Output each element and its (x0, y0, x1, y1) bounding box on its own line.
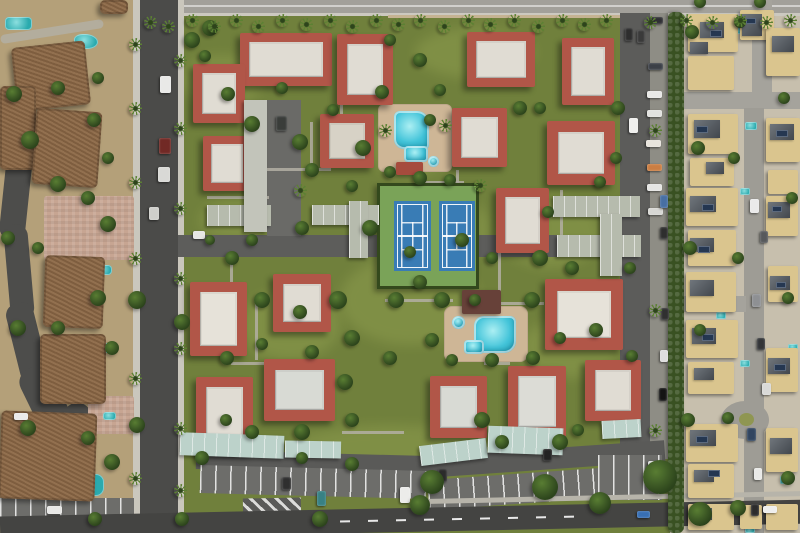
car (763, 506, 777, 513)
tree (184, 32, 200, 48)
right-house-roof (688, 56, 734, 90)
neighborhood-pool (740, 188, 750, 195)
palm-tree (578, 18, 591, 31)
tree (102, 152, 114, 164)
right-house-roof (768, 170, 798, 194)
right-house-gray-section (690, 280, 714, 296)
tree (565, 261, 579, 275)
tree (469, 294, 481, 306)
tree (254, 292, 270, 308)
car (317, 491, 326, 506)
tree (245, 425, 259, 439)
tree (32, 242, 44, 254)
tree (92, 72, 104, 84)
palm-tree (474, 179, 487, 192)
tree (626, 350, 638, 362)
palm-tree (508, 14, 521, 27)
condo-building (562, 38, 614, 105)
carport (557, 235, 641, 257)
tree (128, 291, 146, 309)
tree (486, 252, 498, 264)
tennis-court-lines (397, 204, 428, 268)
palm-tree (680, 14, 693, 27)
solar-panel (708, 470, 720, 477)
tree (244, 116, 260, 132)
condo-building (193, 64, 245, 123)
tree (295, 221, 309, 235)
condo-building (273, 274, 331, 332)
tree (552, 434, 568, 450)
tree (346, 180, 358, 192)
small-structure-roof (462, 290, 501, 314)
tree (305, 345, 319, 359)
palm-tree (734, 14, 747, 27)
palm-tree (174, 272, 187, 285)
palm-tree (649, 424, 662, 437)
tree (225, 251, 239, 265)
car (158, 167, 170, 182)
tree (572, 424, 584, 436)
palm-tree (346, 20, 359, 33)
tree (221, 87, 235, 101)
tree (624, 262, 636, 274)
tree (732, 252, 744, 264)
neighborhood-pool (740, 360, 750, 367)
culdesac-island (739, 413, 754, 426)
car (14, 413, 28, 420)
tree (681, 413, 695, 427)
condo-building (496, 188, 549, 253)
tree (782, 292, 794, 304)
palm-tree (174, 202, 187, 215)
solar-panel (772, 206, 782, 212)
palm-tree (174, 342, 187, 355)
solar-panel (710, 30, 722, 37)
car (160, 76, 171, 93)
palm-tree (644, 16, 657, 29)
tree (589, 492, 611, 514)
condo-building (430, 376, 487, 438)
tree (305, 163, 319, 177)
car (661, 308, 669, 320)
tree (526, 351, 540, 365)
palm-tree (129, 472, 142, 485)
car (647, 110, 662, 117)
palm-tree (294, 184, 307, 197)
palm-tree (252, 20, 265, 33)
tree (688, 502, 712, 526)
tree (786, 192, 798, 204)
tree (104, 454, 120, 470)
tree (683, 241, 697, 255)
car (159, 138, 171, 154)
tree (175, 512, 189, 526)
tree (594, 176, 606, 188)
right-house-gray-section (706, 162, 724, 174)
tree (434, 84, 446, 96)
palm-tree (174, 422, 187, 435)
right-house-gray-section (770, 438, 792, 454)
car (625, 28, 633, 41)
palm-tree (414, 14, 427, 27)
tree (199, 50, 211, 62)
tree (694, 324, 706, 336)
tree (256, 338, 268, 350)
solar-panel (702, 204, 714, 211)
swimming-pool (452, 316, 465, 329)
tree (513, 101, 527, 115)
neighborhood-pool (103, 412, 116, 420)
tree (362, 220, 378, 236)
palm-tree (230, 14, 243, 27)
palm-tree (162, 20, 175, 33)
solar-panel (702, 334, 714, 341)
solar-panel (774, 364, 786, 371)
tree (778, 92, 790, 104)
car (648, 63, 663, 70)
tree (20, 420, 36, 436)
tree (424, 114, 436, 126)
palm-tree (649, 124, 662, 137)
tree (455, 233, 469, 247)
car (276, 116, 287, 131)
tree (312, 511, 328, 527)
tree (294, 424, 310, 440)
car (282, 477, 291, 490)
tree (337, 374, 353, 390)
car (647, 164, 662, 171)
carport-teal (285, 441, 341, 459)
tree (6, 86, 22, 102)
tree (589, 323, 603, 337)
tree (532, 474, 558, 500)
palm-tree (129, 38, 142, 51)
car (660, 227, 668, 239)
palm-tree (600, 14, 613, 27)
carport-teal (602, 419, 642, 439)
tree (10, 320, 26, 336)
car (637, 511, 650, 518)
parking-lot (200, 465, 427, 499)
car (647, 184, 662, 191)
car (149, 207, 159, 220)
tree (781, 471, 795, 485)
tree (205, 235, 215, 245)
tree (88, 512, 102, 526)
solar-panel (776, 130, 788, 137)
tree (425, 333, 439, 347)
tree (691, 141, 705, 155)
car (400, 487, 410, 503)
car (762, 383, 771, 395)
palm-tree (462, 14, 475, 27)
solar-panel (696, 436, 708, 443)
tree (413, 53, 427, 67)
left-street (140, 0, 178, 533)
palm-tree (174, 484, 187, 497)
palm-tree (129, 252, 142, 265)
car (193, 231, 205, 239)
tree (383, 351, 397, 365)
left-house-roof (100, 0, 128, 14)
car (760, 231, 768, 243)
walkway (231, 362, 265, 365)
tree (611, 101, 625, 115)
car (637, 30, 645, 43)
walkway (255, 302, 258, 360)
tree (388, 292, 404, 308)
palm-tree (392, 18, 405, 31)
tree (404, 246, 416, 258)
tree (174, 314, 190, 330)
tree (643, 460, 677, 494)
car (750, 199, 759, 213)
left-house-roof (0, 410, 98, 501)
car (747, 428, 756, 441)
car (648, 208, 663, 215)
tree (434, 292, 450, 308)
palm-tree (532, 20, 545, 33)
palm-tree (208, 20, 221, 33)
tree (474, 412, 490, 428)
tree (81, 191, 95, 205)
palm-tree (370, 14, 383, 27)
tree (532, 250, 548, 266)
car (660, 195, 668, 208)
condo-building (547, 121, 615, 185)
tree (384, 34, 396, 46)
tree (105, 341, 119, 355)
tree (413, 171, 427, 185)
tree (542, 206, 554, 218)
tree (81, 431, 95, 445)
palm-tree (324, 14, 337, 27)
tree (485, 353, 499, 367)
tree (100, 216, 116, 232)
condo-building (585, 360, 641, 421)
palm-tree (129, 102, 142, 115)
palm-tree (144, 16, 157, 29)
tree (554, 332, 566, 344)
palm-tree (706, 16, 719, 29)
tree (344, 330, 360, 346)
tree (728, 152, 740, 164)
car (659, 388, 667, 401)
palm-tree (129, 176, 142, 189)
tennis-court (394, 201, 431, 271)
right-house-gray-section (772, 36, 794, 52)
right-house-gray-section (690, 42, 708, 54)
tree (1, 231, 15, 245)
palm-tree (484, 18, 497, 31)
walkway (342, 431, 404, 434)
condo-building (452, 108, 507, 167)
condo-building (264, 359, 335, 421)
right-house-gray-section (694, 368, 714, 380)
car (757, 338, 765, 350)
palm-tree (556, 14, 569, 27)
left-street-sidewalk (133, 0, 140, 533)
palm-tree (300, 18, 313, 31)
solar-panel (776, 282, 786, 288)
tree (51, 321, 65, 335)
car (47, 506, 62, 514)
carport (553, 196, 640, 217)
tree (345, 457, 359, 471)
car (754, 468, 762, 480)
tree (292, 134, 308, 150)
tree (50, 176, 66, 192)
tree (413, 275, 427, 289)
tree (87, 113, 101, 127)
tree (129, 417, 145, 433)
palm-tree (760, 16, 773, 29)
palm-tree (439, 119, 452, 132)
condo-building (190, 282, 247, 356)
palm-tree (186, 14, 199, 27)
tree (524, 292, 540, 308)
tree (21, 131, 39, 149)
palm-tree (784, 14, 797, 27)
carport (600, 214, 622, 276)
car (752, 294, 761, 307)
left-house-roof (40, 334, 106, 404)
tree (446, 354, 458, 366)
tree (730, 500, 746, 516)
tree (420, 470, 444, 494)
tree (410, 495, 430, 515)
car (660, 350, 668, 362)
tree (90, 290, 106, 306)
palm-tree (438, 20, 451, 33)
tree (195, 451, 209, 465)
tree (722, 412, 734, 424)
paver-entrance (44, 196, 134, 260)
tree (375, 85, 389, 99)
car (751, 504, 759, 516)
aerial-photo (0, 0, 800, 533)
tree (444, 174, 456, 186)
tree (534, 102, 546, 114)
tree (220, 414, 232, 426)
swimming-pool (428, 156, 439, 167)
car (543, 449, 552, 461)
tree (220, 351, 234, 365)
tree (246, 234, 258, 246)
palm-tree (649, 304, 662, 317)
car (646, 140, 661, 147)
tree (276, 82, 288, 94)
boundary-hedge (668, 12, 684, 533)
car (647, 91, 662, 98)
car (629, 118, 638, 133)
tree (495, 435, 509, 449)
palm-tree (276, 14, 289, 27)
walkway (498, 253, 501, 293)
tree (327, 104, 339, 116)
tree (329, 291, 347, 309)
tree (345, 413, 359, 427)
palm-tree (174, 122, 187, 135)
solar-panel (696, 126, 708, 133)
palm-tree (174, 54, 187, 67)
tree (384, 166, 396, 178)
neighborhood-pool (716, 312, 726, 319)
condo-building (467, 32, 535, 87)
swimming-pool (464, 340, 484, 354)
palm-tree (129, 372, 142, 385)
swimming-pool (404, 146, 428, 162)
condo-building (240, 33, 332, 86)
tree (51, 81, 65, 95)
solar-panel (698, 246, 710, 253)
tree (610, 152, 622, 164)
neighborhood-pool (5, 17, 32, 30)
tree (685, 25, 699, 39)
neighborhood-pool (745, 122, 757, 130)
tree (296, 452, 308, 464)
solar-panel (746, 18, 756, 24)
tree (355, 140, 371, 156)
palm-tree (379, 124, 392, 137)
tree (293, 305, 307, 319)
